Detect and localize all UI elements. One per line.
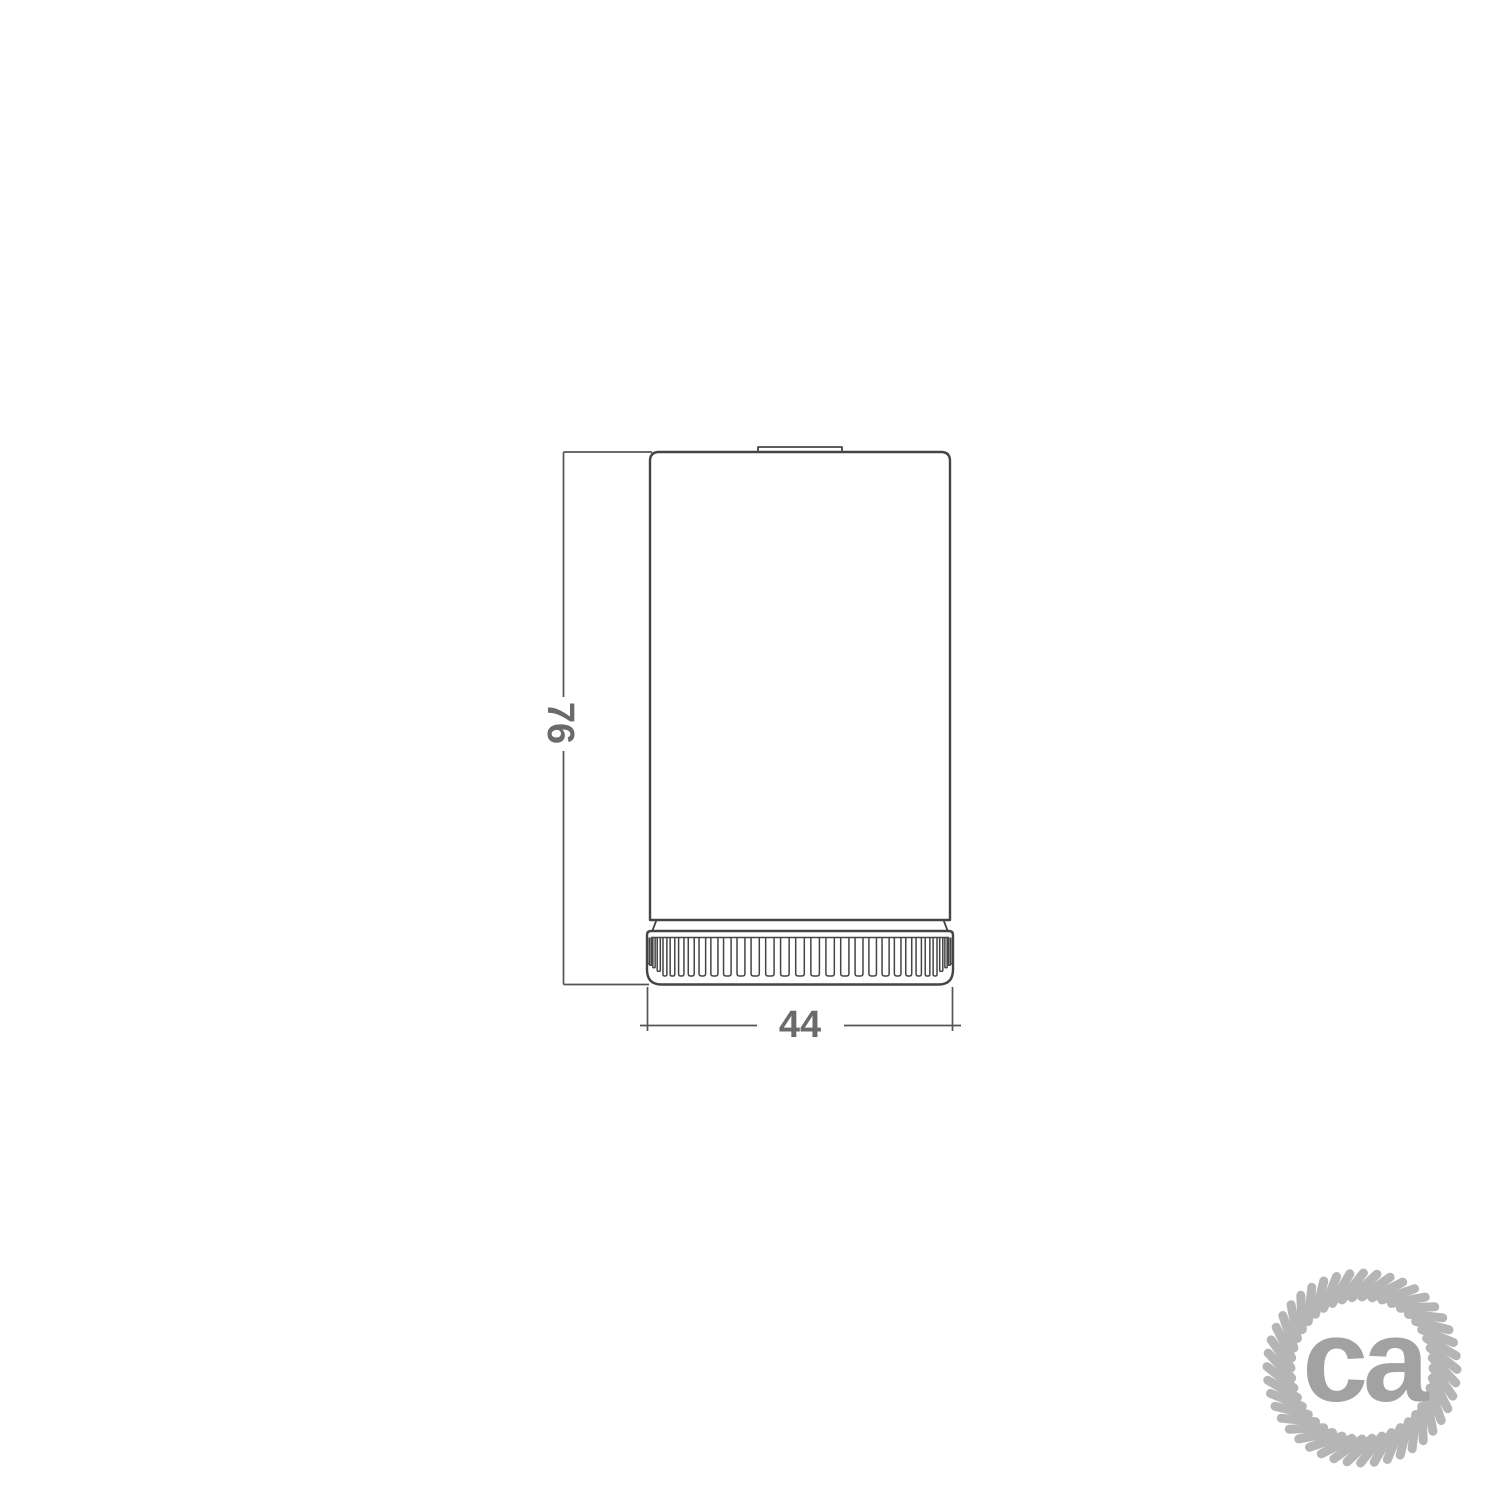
height-dimension-label: 76 bbox=[539, 702, 581, 744]
rope-strand bbox=[1427, 1398, 1433, 1432]
knurled-ring bbox=[647, 931, 953, 985]
collar-right-edge bbox=[944, 920, 948, 931]
rope-strand bbox=[1289, 1428, 1323, 1430]
diameter-dimension: 44 bbox=[640, 987, 961, 1046]
lamp-holder-body bbox=[650, 447, 950, 931]
drawing-canvas: 76 44 ca bbox=[0, 0, 1500, 1500]
diameter-dimension-label: 44 bbox=[779, 1004, 821, 1046]
cylinder-body bbox=[650, 452, 950, 920]
rope-strand bbox=[1291, 1305, 1297, 1339]
collar-left-edge bbox=[653, 920, 657, 931]
logo-text: ca bbox=[1302, 1295, 1430, 1427]
height-dimension: 76 bbox=[539, 452, 652, 985]
product-technical-drawing: 76 44 ca bbox=[0, 0, 1500, 1500]
rope-strand bbox=[1299, 1433, 1333, 1439]
creative-cables-logo: ca bbox=[1267, 1273, 1457, 1463]
